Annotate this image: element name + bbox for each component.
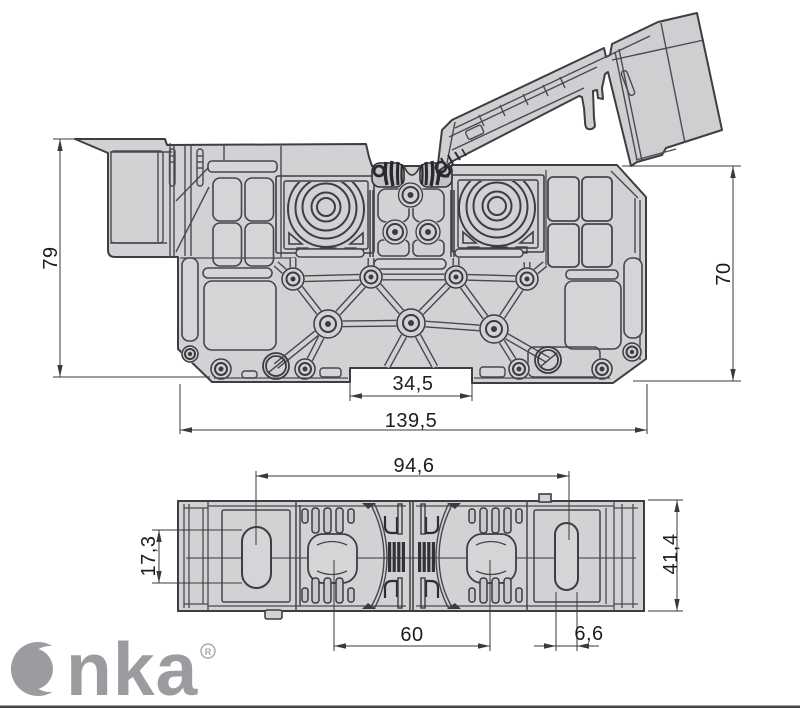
svg-text:139,5: 139,5 xyxy=(385,410,438,432)
svg-text:34,5: 34,5 xyxy=(393,373,434,395)
svg-text:17,3: 17,3 xyxy=(138,536,160,577)
svg-text:6,6: 6,6 xyxy=(574,623,603,645)
svg-text:94,6: 94,6 xyxy=(394,455,435,477)
svg-text:R: R xyxy=(205,647,212,657)
svg-text:79: 79 xyxy=(40,246,62,269)
svg-text:nka: nka xyxy=(66,627,199,709)
svg-text:41,4: 41,4 xyxy=(660,534,682,575)
svg-text:70: 70 xyxy=(713,262,735,285)
svg-text:60: 60 xyxy=(400,624,423,646)
